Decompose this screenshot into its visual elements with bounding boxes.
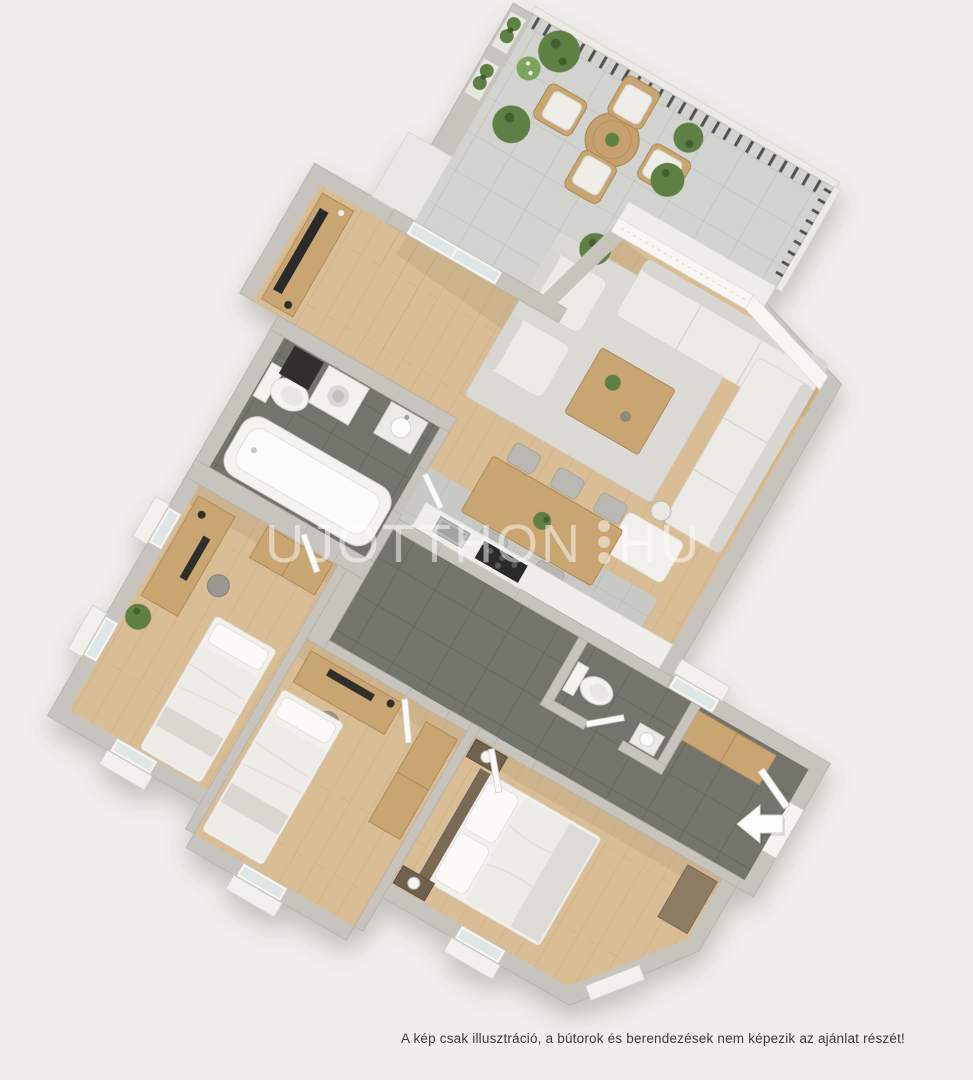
disclaimer-caption: A kép csak illusztráció, a bútorok és be… bbox=[401, 1031, 905, 1046]
watermark-tld: HU bbox=[618, 514, 702, 574]
watermark: UJOTTHON HU bbox=[265, 514, 702, 574]
watermark-brand: UJOTTHON bbox=[265, 514, 583, 574]
floor-plan-render: UJOTTHON HU bbox=[0, 0, 973, 1080]
watermark-dots-icon bbox=[598, 520, 610, 564]
